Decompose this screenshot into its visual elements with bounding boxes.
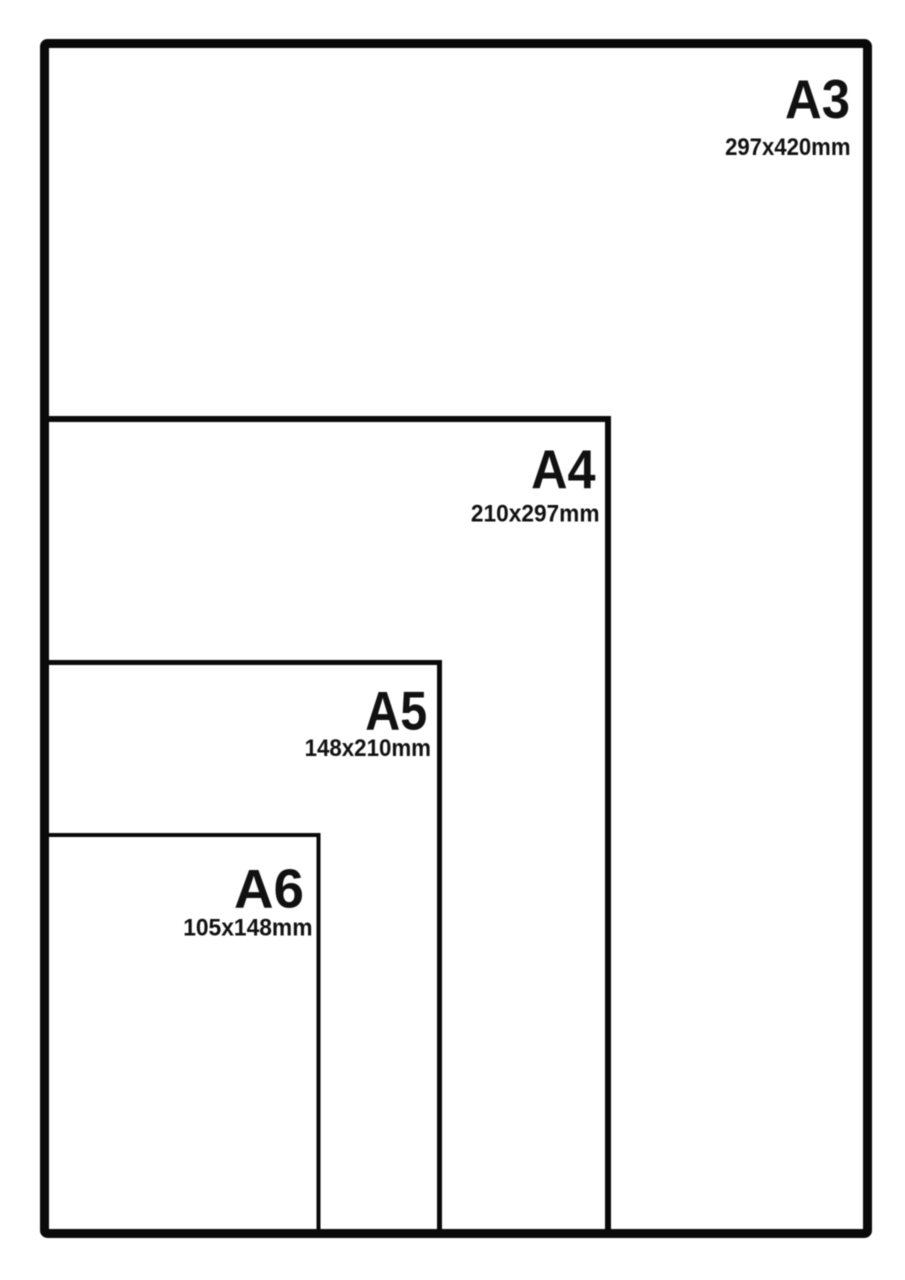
svg-text:A3: A3: [785, 68, 850, 130]
svg-text:210x297mm: 210x297mm: [471, 501, 600, 528]
svg-text:105x148mm: 105x148mm: [183, 915, 312, 942]
svg-text:A4: A4: [531, 438, 596, 500]
svg-text:297x420mm: 297x420mm: [725, 134, 850, 161]
svg-text:148x210mm: 148x210mm: [305, 735, 431, 762]
svg-text:A5: A5: [365, 680, 427, 742]
svg-text:A6: A6: [234, 858, 304, 920]
